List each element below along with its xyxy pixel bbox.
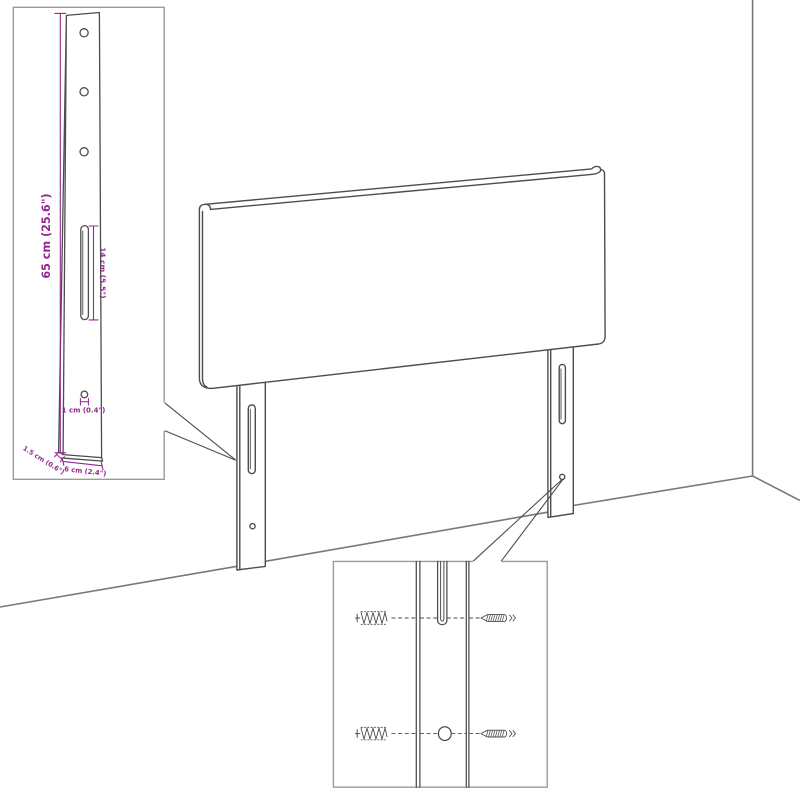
headboard-right-leg bbox=[548, 347, 573, 517]
leader-lines bbox=[392, 618, 482, 734]
hole-dimension-label: 1 cm (0.4") bbox=[62, 407, 106, 415]
screw-icon bbox=[481, 615, 516, 622]
closeup-slot-outer bbox=[438, 561, 447, 624]
left-leg-outline bbox=[237, 382, 265, 570]
floor-line-right bbox=[573, 476, 752, 506]
closeup-slot-inner bbox=[441, 561, 444, 621]
headboard-left-leg bbox=[237, 382, 265, 570]
headboard bbox=[199, 166, 605, 570]
closeup-hole bbox=[438, 727, 451, 741]
screw-icon bbox=[481, 730, 516, 737]
headboard-panel-outline bbox=[199, 166, 605, 388]
inset-leg-callout-wedge bbox=[165, 403, 236, 460]
closeup-leg-right-edge bbox=[466, 561, 469, 787]
floor-line-corner-right bbox=[753, 476, 800, 501]
dim-hole-marker bbox=[80, 398, 88, 405]
bracket-hole-middle bbox=[80, 88, 88, 96]
floor-line-left bbox=[0, 566, 237, 607]
slot-length-dimension-label: 14 cm (5.5") bbox=[99, 247, 108, 298]
left-leg-slot bbox=[248, 405, 255, 474]
diagram-canvas: 65 cm (25.6") 14 cm (5.5") 1 cm (0.4") 6… bbox=[0, 0, 800, 800]
bracket-bottom-hole bbox=[81, 391, 88, 398]
height-dimension-label: 65 cm (25.6") bbox=[40, 193, 53, 278]
dim-slot-line bbox=[89, 226, 98, 320]
right-leg-slot bbox=[559, 364, 565, 423]
right-leg-hole bbox=[560, 474, 565, 479]
bracket-hole-lower bbox=[80, 148, 88, 156]
left-leg-hole bbox=[250, 524, 255, 529]
inset-mounting-detail bbox=[333, 480, 562, 788]
floor-line-middle bbox=[265, 512, 547, 561]
bracket-hole-top bbox=[80, 29, 88, 37]
inset-mounting-drawing bbox=[356, 561, 516, 787]
wall-plug-icon bbox=[356, 727, 388, 740]
closeup-leg-left-edge bbox=[416, 561, 420, 787]
wall-plug-icon bbox=[356, 612, 388, 625]
width-dimension-label: 6 cm (2.4") bbox=[64, 465, 107, 478]
inset-mounting-callout-wedge bbox=[473, 480, 562, 562]
inset-leg-drawing bbox=[59, 13, 103, 462]
bracket-slot bbox=[81, 226, 89, 320]
